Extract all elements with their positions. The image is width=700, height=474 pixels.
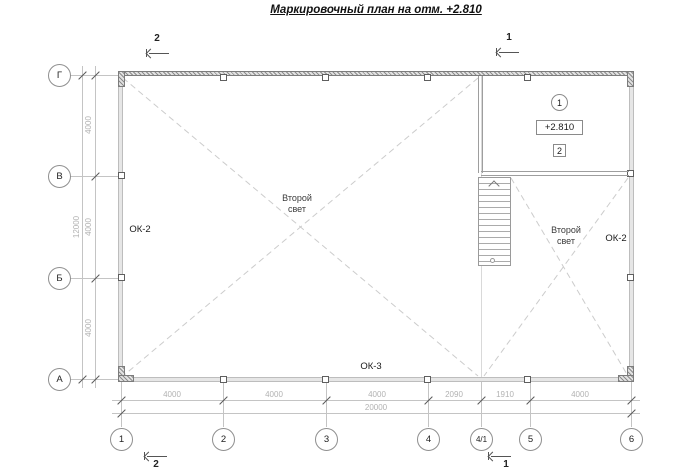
window-tag-ok3-bottom: ОК-3 [349, 361, 393, 372]
section-mark-bar [144, 452, 145, 460]
column-marker [524, 376, 531, 383]
section-mark-bottom-right-number: 1 [500, 459, 512, 470]
wall-right [629, 71, 634, 382]
axis-bubble-col-4: 4 [417, 428, 440, 451]
dim-bottom-5: 1910 [487, 390, 523, 400]
grid-line-col-2 [223, 382, 224, 427]
axis-label: 4/1 [476, 435, 487, 444]
room-partition-wall-horizontal [481, 171, 629, 176]
column-marker [424, 376, 431, 383]
section-mark-bar [488, 452, 489, 460]
axis-bubble-row-b: Б [48, 267, 71, 290]
window-tag-ok2-right: ОК-2 [594, 233, 638, 244]
axis-label: 3 [324, 434, 329, 445]
dim-line-left-outer [82, 66, 83, 388]
dim-bottom-2: 4000 [256, 390, 292, 400]
axis-bubble-col-1: 1 [110, 428, 133, 451]
grid-line-col-5 [530, 382, 531, 427]
axis-bubble-row-a: А [48, 368, 71, 391]
dim-left-2: 4000 [84, 209, 94, 245]
second-light-line1: Второй [267, 193, 327, 204]
section-mark-bottom-left-number: 2 [150, 459, 162, 470]
grid-line-col-4-1 [481, 382, 482, 427]
wall-top [118, 71, 634, 76]
second-light-label-center: Второй свет [267, 193, 327, 215]
dim-line-bottom-inner [112, 400, 640, 401]
axis-label: Г [57, 70, 62, 81]
dim-line-left-inner [95, 66, 96, 388]
dim-bottom-3: 4000 [359, 390, 395, 400]
section-mark-bar [496, 48, 497, 56]
section-mark-top-right-number: 1 [503, 32, 515, 43]
axis-label: 4 [426, 434, 431, 445]
section-mark-top-left-number: 2 [151, 33, 163, 44]
floor-plan-drawing: Маркировочный план на отм. +2.810 4000 4… [0, 0, 700, 474]
dim-left-3: 4000 [84, 310, 94, 346]
room-elevation-box: +2.810 [536, 120, 583, 135]
dim-bottom-4: 2090 [436, 390, 472, 400]
column-marker [424, 74, 431, 81]
grid-line-col-3 [326, 382, 327, 427]
axis-bubble-col-4-1: 4/1 [470, 428, 493, 451]
room-position-bubble: 1 [551, 94, 568, 111]
room-detail-box: 2 [553, 144, 566, 157]
second-light-line2: свет [267, 204, 327, 215]
axis-bubble-col-6: 6 [620, 428, 643, 451]
room-position-number: 1 [557, 98, 562, 108]
corner-bottom-right-h [618, 375, 634, 382]
corner-top-left [118, 71, 125, 87]
column-marker [322, 74, 329, 81]
column-marker [627, 274, 634, 281]
axis-label: 2 [221, 434, 226, 445]
column-marker [322, 376, 329, 383]
axis-label: Б [56, 273, 62, 284]
dim-left-1: 4000 [84, 107, 94, 143]
axis-bubble-row-v: В [48, 165, 71, 188]
grid-line-col-6 [631, 382, 632, 427]
column-marker [118, 172, 125, 179]
axis-label: 1 [119, 434, 124, 445]
column-marker [220, 74, 227, 81]
axis-bubble-row-g: Г [48, 64, 71, 87]
dim-bottom-1: 4000 [154, 390, 190, 400]
room-elevation-value: +2.810 [545, 122, 574, 133]
column-marker [524, 74, 531, 81]
axis-label: А [56, 374, 62, 385]
section-mark-bar [146, 49, 147, 57]
dim-left-total: 12000 [72, 209, 82, 245]
column-marker [118, 274, 125, 281]
axis-label: В [56, 171, 62, 182]
axis-bubble-col-3: 3 [315, 428, 338, 451]
grid-line-col-1 [121, 382, 122, 427]
grid-line-col-4 [428, 382, 429, 427]
column-marker [220, 376, 227, 383]
window-tag-ok2-left: ОК-2 [118, 224, 162, 235]
axis-label: 6 [629, 434, 634, 445]
second-light-line1: Второй [536, 225, 596, 236]
dim-bottom-6: 4000 [562, 390, 598, 400]
corner-top-right [627, 71, 634, 87]
dim-bottom-total: 20000 [358, 403, 394, 413]
room-partition-wall-vertical [478, 76, 483, 173]
stair-start-marker [490, 258, 495, 263]
room-detail-number: 2 [557, 146, 562, 156]
second-light-label-right: Второй свет [536, 225, 596, 247]
axis-label: 5 [528, 434, 533, 445]
second-light-line2: свет [536, 236, 596, 247]
axis-bubble-col-2: 2 [212, 428, 235, 451]
dim-line-bottom-outer [112, 413, 640, 414]
axis-bubble-col-5: 5 [519, 428, 542, 451]
corner-bottom-left-h [118, 375, 134, 382]
wall-bottom [118, 377, 634, 382]
